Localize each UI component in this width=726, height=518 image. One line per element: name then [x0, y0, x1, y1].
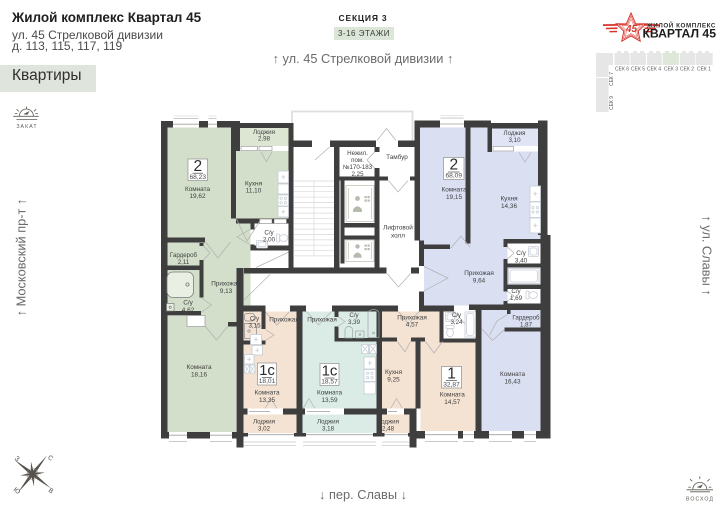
svg-text:Комната: Комната — [317, 390, 342, 397]
svg-text:14,57: 14,57 — [444, 399, 460, 406]
svg-text:Комната: Комната — [441, 187, 466, 194]
svg-text:Кухня: Кухня — [500, 196, 518, 203]
svg-text:9,13: 9,13 — [220, 288, 233, 295]
svg-text:3,24: 3,24 — [450, 319, 463, 326]
svg-text:СЕК 4: СЕК 4 — [647, 67, 661, 73]
svg-text:Комната: Комната — [500, 371, 525, 378]
svg-text:С/у: С/у — [452, 312, 462, 319]
svg-text:С/у: С/у — [264, 230, 274, 237]
svg-text:11,10: 11,10 — [246, 188, 262, 195]
svg-text:19,15: 19,15 — [446, 194, 462, 201]
svg-text:1,69: 1,69 — [510, 295, 523, 302]
svg-text:Прихожая: Прихожая — [464, 270, 494, 277]
svg-text:68,23: 68,23 — [189, 174, 206, 181]
svg-text:13,59: 13,59 — [322, 397, 338, 404]
svg-text:3,10: 3,10 — [508, 137, 521, 144]
svg-text:Прихожая: Прихожая — [307, 317, 337, 324]
svg-text:2,00: 2,00 — [263, 237, 276, 244]
svg-text:№170-183: №170-183 — [343, 164, 373, 171]
svg-text:СЕК 2: СЕК 2 — [680, 67, 694, 73]
svg-text:С/у: С/у — [250, 316, 260, 323]
svg-text:4,62: 4,62 — [182, 307, 195, 314]
svg-text:1: 1 — [447, 365, 456, 382]
svg-text:Кухня: Кухня — [385, 369, 403, 376]
svg-text:З: З — [13, 455, 20, 463]
svg-text:3,40: 3,40 — [515, 257, 528, 264]
svg-text:Нежил.: Нежил. — [347, 150, 368, 157]
svg-text:1с: 1с — [322, 363, 338, 380]
svg-text:СЕК 1: СЕК 1 — [697, 67, 711, 73]
svg-text:9,25: 9,25 — [387, 376, 400, 383]
svg-text:13,35: 13,35 — [259, 397, 275, 404]
svg-text:1с: 1с — [259, 362, 275, 379]
svg-text:ЗАКАТ: ЗАКАТ — [16, 124, 37, 130]
svg-text:С/у: С/у — [511, 288, 521, 295]
svg-text:Комната: Комната — [440, 391, 465, 398]
svg-text:3,02: 3,02 — [258, 426, 271, 433]
svg-text:СЕК 9: СЕК 9 — [609, 96, 615, 110]
svg-text:Гардероб: Гардероб — [512, 315, 540, 322]
svg-text:45: 45 — [625, 24, 637, 35]
svg-text:холл: холл — [391, 232, 405, 239]
svg-text:СЕК 5: СЕК 5 — [631, 67, 645, 73]
svg-text:2,25: 2,25 — [351, 171, 364, 178]
svg-text:Комната: Комната — [186, 364, 211, 371]
svg-text:Лифтовой: Лифтовой — [383, 224, 413, 232]
svg-text:18,16: 18,16 — [191, 371, 207, 378]
svg-text:Прихожая: Прихожая — [397, 315, 427, 322]
svg-text:68,09: 68,09 — [445, 173, 462, 180]
svg-text:2,98: 2,98 — [258, 136, 271, 143]
svg-text:Лоджия: Лоджия — [253, 419, 275, 426]
svg-text:Ю: Ю — [12, 486, 22, 496]
svg-text:4,57: 4,57 — [406, 322, 419, 329]
svg-text:СЕК 3: СЕК 3 — [664, 67, 678, 73]
svg-text:2,48: 2,48 — [382, 426, 395, 433]
svg-text:3,18: 3,18 — [322, 426, 335, 433]
svg-text:Комната: Комната — [254, 390, 279, 397]
svg-text:Лоджия: Лоджия — [317, 419, 339, 426]
svg-text:В: В — [47, 487, 55, 496]
svg-text:С/у: С/у — [516, 250, 526, 257]
svg-text:Прихожая: Прихожая — [269, 317, 299, 324]
svg-text:Гардероб: Гардероб — [170, 252, 198, 259]
svg-text:Лоджия: Лоджия — [377, 419, 399, 426]
svg-text:19,62: 19,62 — [190, 193, 206, 200]
svg-text:32,87: 32,87 — [443, 381, 460, 388]
svg-text:Прихожая: Прихожая — [211, 281, 241, 288]
svg-text:3,39: 3,39 — [348, 319, 361, 326]
svg-text:С/у: С/у — [349, 312, 359, 319]
svg-text:1,87: 1,87 — [520, 322, 533, 329]
svg-text:16,43: 16,43 — [505, 378, 521, 385]
svg-text:Тамбур: Тамбур — [386, 153, 408, 161]
svg-text:Кухня: Кухня — [245, 181, 263, 188]
svg-text:С: С — [46, 454, 54, 463]
svg-text:СЕК 6: СЕК 6 — [615, 67, 629, 73]
svg-text:18,57: 18,57 — [321, 379, 338, 386]
svg-text:пом.: пом. — [351, 157, 364, 164]
svg-text:ВОСХОД: ВОСХОД — [686, 497, 714, 503]
svg-text:2: 2 — [449, 157, 458, 174]
svg-text:3,15: 3,15 — [248, 323, 261, 330]
svg-text:14,36: 14,36 — [501, 203, 517, 210]
svg-text:КВАРТАЛ 45: КВАРТАЛ 45 — [642, 27, 716, 41]
svg-text:2,11: 2,11 — [178, 259, 190, 266]
svg-text:18,01: 18,01 — [259, 378, 276, 385]
svg-text:Комната: Комната — [185, 186, 210, 193]
svg-text:С/у: С/у — [183, 300, 193, 307]
svg-text:9,64: 9,64 — [473, 277, 486, 284]
svg-text:СЕК 7: СЕК 7 — [609, 72, 615, 86]
svg-text:2: 2 — [193, 158, 202, 175]
